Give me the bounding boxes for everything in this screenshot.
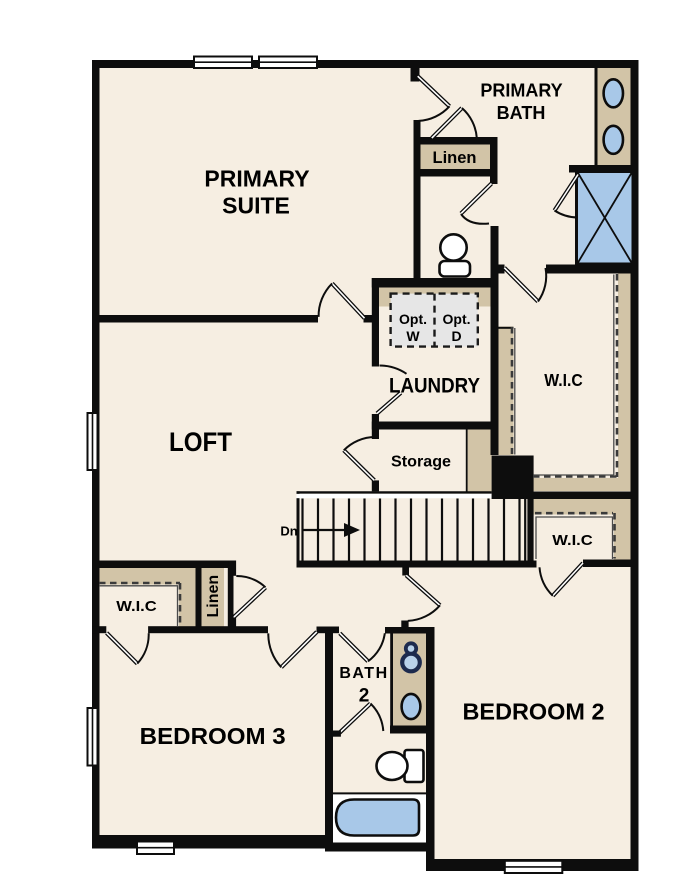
svg-text:W.I.C: W.I.C — [552, 532, 593, 549]
svg-text:BATH: BATH — [339, 665, 388, 682]
svg-text:PRIMARY: PRIMARY — [204, 166, 309, 192]
svg-text:Linen: Linen — [205, 575, 222, 618]
svg-text:W: W — [406, 328, 420, 344]
svg-text:W.I.C: W.I.C — [544, 370, 583, 390]
svg-text:PRIMARY: PRIMARY — [480, 81, 562, 101]
svg-text:BEDROOM 3: BEDROOM 3 — [140, 723, 286, 749]
svg-text:W.I.C: W.I.C — [116, 598, 157, 615]
svg-text:D: D — [451, 328, 461, 344]
svg-text:Opt.: Opt. — [443, 311, 471, 327]
svg-text:LAUNDRY: LAUNDRY — [389, 374, 480, 398]
svg-text:BEDROOM 2: BEDROOM 2 — [463, 699, 605, 725]
svg-text:BATH: BATH — [497, 103, 546, 123]
svg-text:Opt.: Opt. — [399, 311, 427, 327]
svg-text:SUITE: SUITE — [222, 192, 290, 218]
svg-text:2: 2 — [359, 686, 370, 707]
svg-text:LOFT: LOFT — [169, 427, 232, 457]
svg-text:Linen: Linen — [433, 149, 477, 167]
svg-text:Dn: Dn — [280, 524, 297, 539]
svg-text:Storage: Storage — [391, 454, 451, 471]
